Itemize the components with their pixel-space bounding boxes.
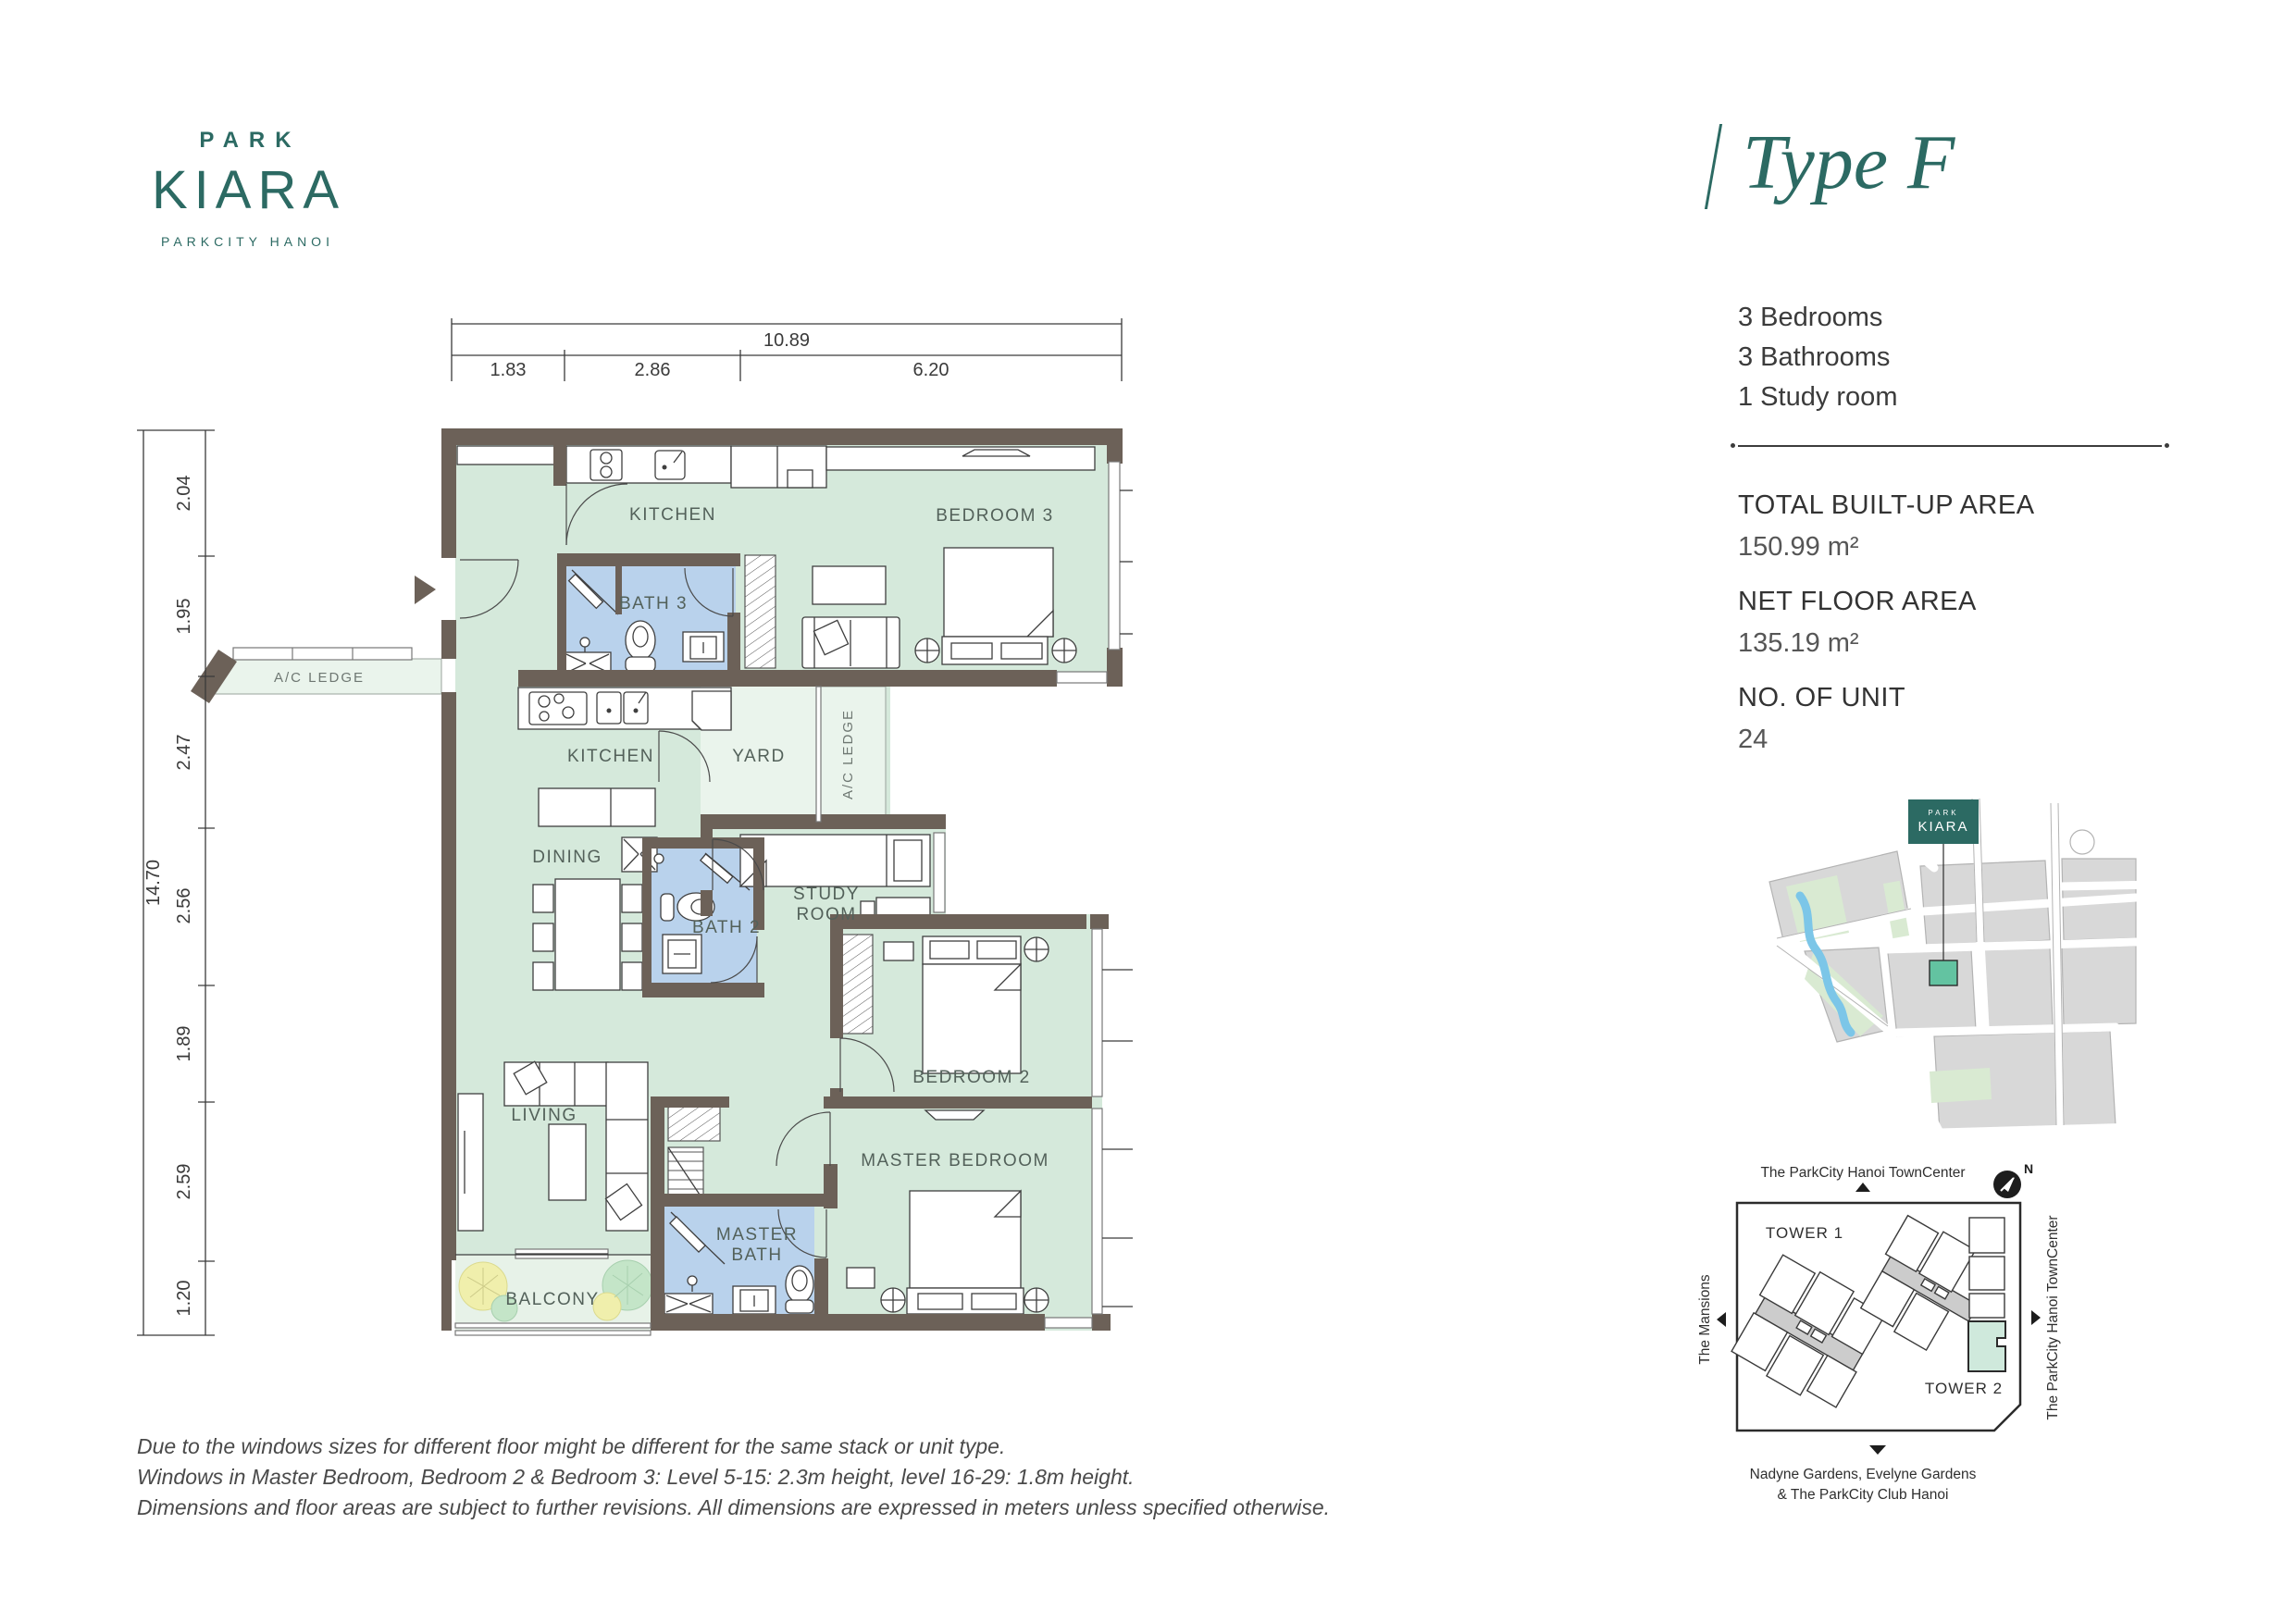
site-map: PARK KIARA xyxy=(1749,794,2161,1150)
towncenter-top-label: The ParkCity Hanoi TownCenter xyxy=(1760,1165,1965,1181)
arrow-right-icon xyxy=(2031,1310,2041,1325)
label-ac-ledge-left: A/C LEDGE xyxy=(274,670,365,686)
label-dining: DINING xyxy=(532,848,602,867)
tower1-label: TOWER 1 xyxy=(1766,1224,1843,1242)
kitchen-mid-counter xyxy=(518,688,731,730)
stat-label-builtup: TOTAL BUILT-UP AREA xyxy=(1738,490,2035,521)
arrow-down-icon xyxy=(1869,1445,1886,1455)
label-master-bath-1: MASTER xyxy=(716,1225,798,1245)
svg-text:N: N xyxy=(2024,1161,2033,1176)
label-balcony: BALCONY xyxy=(505,1290,599,1309)
tower-key-plan: The ParkCity Hanoi TownCenter N xyxy=(1698,1155,2170,1553)
tower1-footprint xyxy=(1727,1252,1891,1414)
logo-parkcity-hanoi: PARKCITY HANOI xyxy=(130,234,361,249)
label-kitchen-mid: KITCHEN xyxy=(567,747,654,766)
arrow-left-icon xyxy=(1717,1312,1726,1327)
label-master-bath-2: BATH xyxy=(731,1245,782,1265)
kitchen-top-counter xyxy=(566,446,826,488)
svg-text:1.83: 1.83 xyxy=(490,360,527,380)
entry-arrow-icon xyxy=(415,576,436,604)
svg-text:KIARA: KIARA xyxy=(1917,819,1968,835)
dimension-top: 10.89 1.83 2.86 6.20 xyxy=(452,318,1122,381)
stat-value-netfloor: 135.19 m² xyxy=(1738,628,2035,659)
svg-text:2.56: 2.56 xyxy=(174,888,194,924)
disclaimer-line2: Windows in Master Bedroom, Bedroom 2 & B… xyxy=(137,1462,1330,1493)
kitchen-island xyxy=(539,788,655,826)
summary-bedrooms: 3 Bedrooms xyxy=(1738,298,1897,338)
stat-value-builtup: 150.99 m² xyxy=(1738,532,2035,563)
svg-text:1.95: 1.95 xyxy=(174,599,194,635)
arrow-up-icon xyxy=(1855,1183,1870,1192)
page-title: Type F xyxy=(1743,118,1955,207)
unit-type-header: Type F xyxy=(1712,118,1955,209)
page: PARK KIARA PARKCITY HANOI Type F 3 Bedro… xyxy=(0,0,2296,1623)
summary-studyroom: 1 Study room xyxy=(1738,378,1897,417)
stat-label-netfloor: NET FLOOR AREA xyxy=(1738,587,2035,617)
disclaimer-line1: Due to the windows sizes for different f… xyxy=(137,1431,1330,1462)
disclaimer-line3: Dimensions and floor areas are subject t… xyxy=(137,1493,1330,1523)
tower2-footprint xyxy=(1855,1212,2005,1371)
label-bedroom2: BEDROOM 2 xyxy=(912,1068,1031,1087)
svg-text:2.47: 2.47 xyxy=(174,735,194,771)
unit-summary: 3 Bedrooms 3 Bathrooms 1 Study room xyxy=(1738,298,1897,417)
label-bath2: BATH 2 xyxy=(692,918,761,937)
bedroom3-wardrobe xyxy=(745,555,776,668)
summary-bathrooms: 3 Bathrooms xyxy=(1738,338,1897,378)
map-lot-highlight xyxy=(1930,960,1957,985)
svg-text:1.89: 1.89 xyxy=(174,1026,194,1062)
svg-text:14.70: 14.70 xyxy=(143,860,164,906)
stat-value-units: 24 xyxy=(1738,725,2035,755)
north-compass-icon: N xyxy=(1993,1161,2033,1198)
svg-text:6.20: 6.20 xyxy=(913,360,949,380)
dimension-left: 14.70 2.04 1.95 2.47 2.56 1.89 2.59 1.20 xyxy=(137,430,215,1335)
logo-kiara: KIARA xyxy=(130,159,361,221)
towncenter-right-label: The ParkCity Hanoi TownCenter xyxy=(2045,1215,2061,1419)
floor-plan: KITCHEN BEDROOM 3 BATH 3 A/C LEDGE KITCH… xyxy=(130,305,1166,1369)
map-park-kiara-box: PARK KIARA xyxy=(1908,799,1979,844)
label-ac-ledge-right: A/C LEDGE xyxy=(840,709,856,799)
entry-closet xyxy=(457,446,555,465)
svg-text:2.59: 2.59 xyxy=(174,1164,194,1200)
tower2-unit-highlight xyxy=(1968,1321,2005,1371)
mansions-label: The Mansions xyxy=(1698,1274,1713,1365)
label-bedroom3: BEDROOM 3 xyxy=(936,506,1054,526)
slash-icon xyxy=(1705,124,1722,209)
divider xyxy=(1738,445,2162,447)
label-study-2: ROOM xyxy=(796,905,856,924)
gardens-label-line2: & The ParkCity Club Hanoi xyxy=(1778,1487,1949,1503)
unit-stats: TOTAL BUILT-UP AREA 150.99 m² NET FLOOR … xyxy=(1738,490,2035,779)
label-living: LIVING xyxy=(511,1106,577,1125)
label-master-bedroom: MASTER BEDROOM xyxy=(861,1151,1049,1171)
svg-text:1.20: 1.20 xyxy=(174,1281,194,1317)
stat-label-units: NO. OF UNIT xyxy=(1738,683,2035,713)
dining-table xyxy=(533,879,642,990)
disclaimer: Due to the windows sizes for different f… xyxy=(137,1431,1330,1523)
label-kitchen-top: KITCHEN xyxy=(629,505,716,525)
label-yard: YARD xyxy=(732,747,785,766)
gardens-label-line1: Nadyne Gardens, Evelyne Gardens xyxy=(1750,1467,1977,1482)
logo-park: PARK xyxy=(130,128,361,154)
svg-text:2.86: 2.86 xyxy=(635,360,671,380)
tower2-label: TOWER 2 xyxy=(1925,1380,2003,1397)
svg-text:10.89: 10.89 xyxy=(763,330,810,351)
label-bath3: BATH 3 xyxy=(619,594,688,613)
svg-text:2.04: 2.04 xyxy=(174,476,194,512)
master-tv xyxy=(925,1110,984,1120)
label-study-1: STUDY xyxy=(793,885,860,904)
park-kiara-logo: PARK KIARA PARKCITY HANOI xyxy=(130,128,361,249)
svg-text:PARK: PARK xyxy=(1928,809,1958,817)
